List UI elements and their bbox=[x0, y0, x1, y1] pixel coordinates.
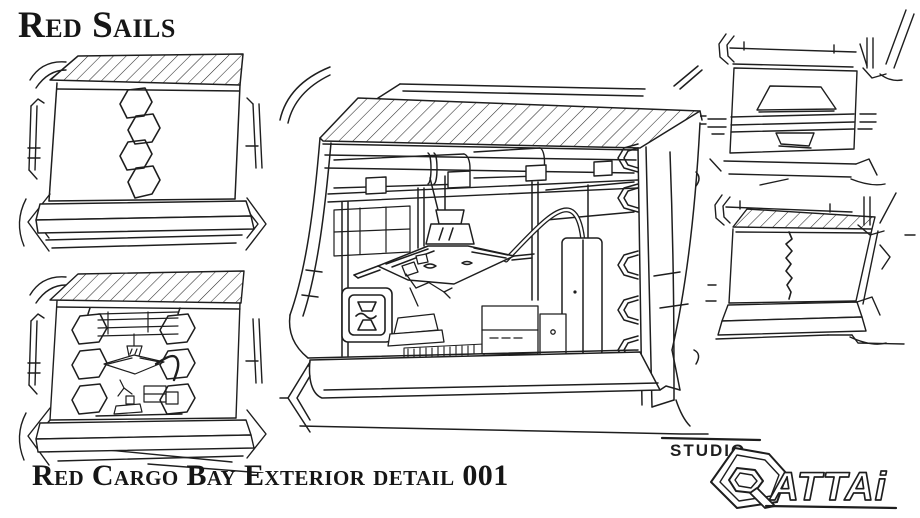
zigzag-seam bbox=[786, 232, 792, 299]
hatched-awning bbox=[50, 271, 244, 303]
ground-line bbox=[300, 426, 708, 434]
concept-art-sheet: Red Sails Red Cargo Bay Exterior detail … bbox=[0, 0, 920, 518]
interior-pipes bbox=[98, 312, 178, 336]
panel-bay-half-open bbox=[28, 268, 278, 473]
hex-seam bbox=[120, 88, 160, 198]
service-robot-small bbox=[114, 380, 142, 414]
front-sill bbox=[310, 352, 691, 426]
left-wall bbox=[290, 138, 331, 358]
sheet-title: Red Sails bbox=[18, 4, 176, 47]
hatched-awning bbox=[733, 209, 875, 229]
logo-wordmark: ATTAi bbox=[769, 465, 887, 509]
storage-cabinet bbox=[562, 238, 602, 356]
panel-bay-open-main-detail bbox=[278, 60, 710, 440]
logo-overline bbox=[662, 438, 760, 440]
window-grid bbox=[334, 206, 410, 256]
chevron-decoration bbox=[280, 362, 310, 432]
overhead-beam bbox=[328, 161, 638, 202]
hatched-awning bbox=[320, 98, 700, 148]
equipment-boxes bbox=[482, 306, 566, 356]
outer-hull-right bbox=[654, 111, 702, 390]
hazard-sign bbox=[342, 288, 392, 342]
sheet-caption: Red Cargo Bay Exterior detail 001 bbox=[32, 459, 509, 493]
hatch-face bbox=[730, 68, 857, 153]
panel-bay-closed-zigzag bbox=[700, 185, 920, 375]
studio-logo: STUDIO ATTAi bbox=[648, 426, 918, 516]
panel-bay-closed-hex-seam bbox=[28, 52, 278, 252]
panel-hatch-closed bbox=[700, 8, 920, 190]
docked-ship-small bbox=[104, 334, 178, 380]
hatched-awning bbox=[50, 54, 243, 85]
